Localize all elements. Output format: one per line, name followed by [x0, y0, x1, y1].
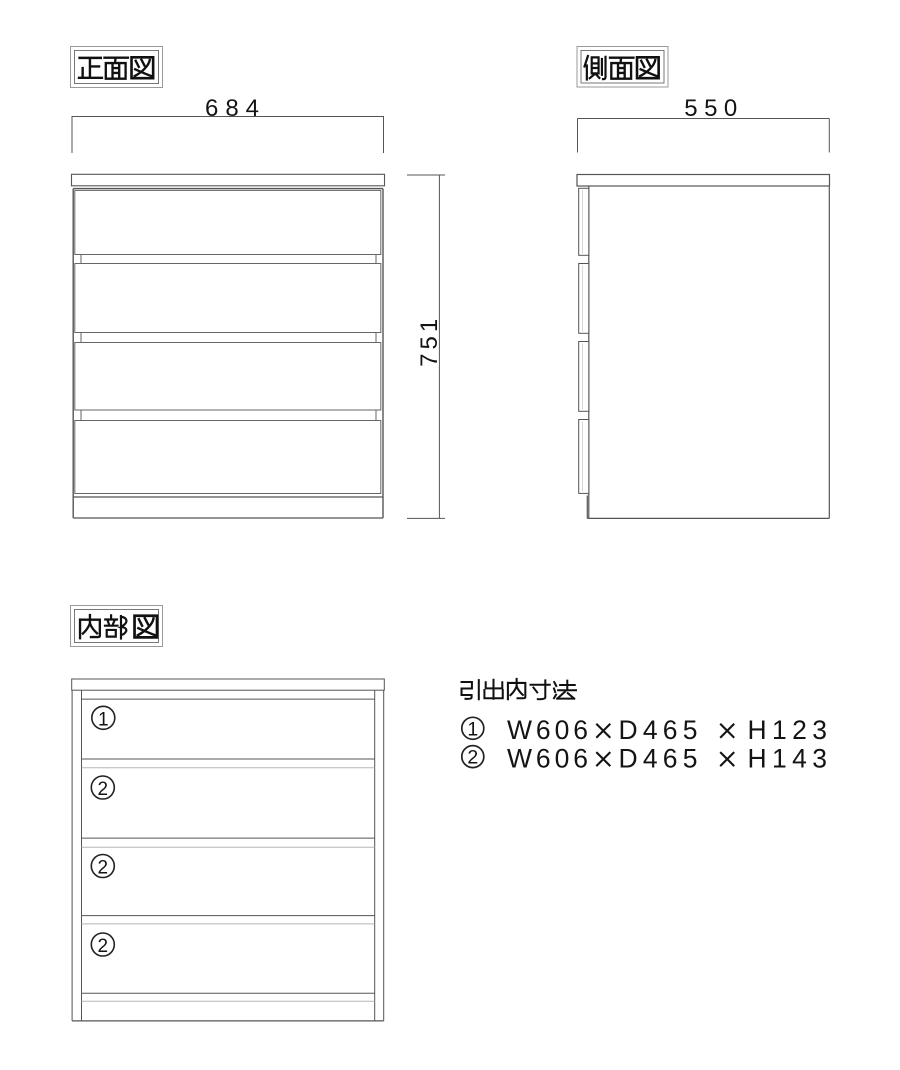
- svg-text:D465: D465: [619, 715, 698, 745]
- svg-text:1: 1: [467, 718, 478, 740]
- svg-text:550: 550: [684, 95, 744, 122]
- svg-text:D465: D465: [619, 743, 698, 773]
- svg-text:W606: W606: [507, 715, 588, 745]
- svg-text:H123: H123: [748, 715, 828, 745]
- svg-text:2: 2: [98, 779, 109, 800]
- svg-text:H143: H143: [748, 743, 828, 773]
- svg-text:2: 2: [98, 858, 109, 879]
- svg-text:1: 1: [98, 710, 109, 731]
- svg-text:W606: W606: [507, 743, 588, 773]
- svg-text:684: 684: [205, 95, 266, 122]
- svg-text:2: 2: [467, 747, 478, 769]
- svg-text:2: 2: [98, 936, 109, 957]
- svg-text:751: 751: [416, 315, 443, 367]
